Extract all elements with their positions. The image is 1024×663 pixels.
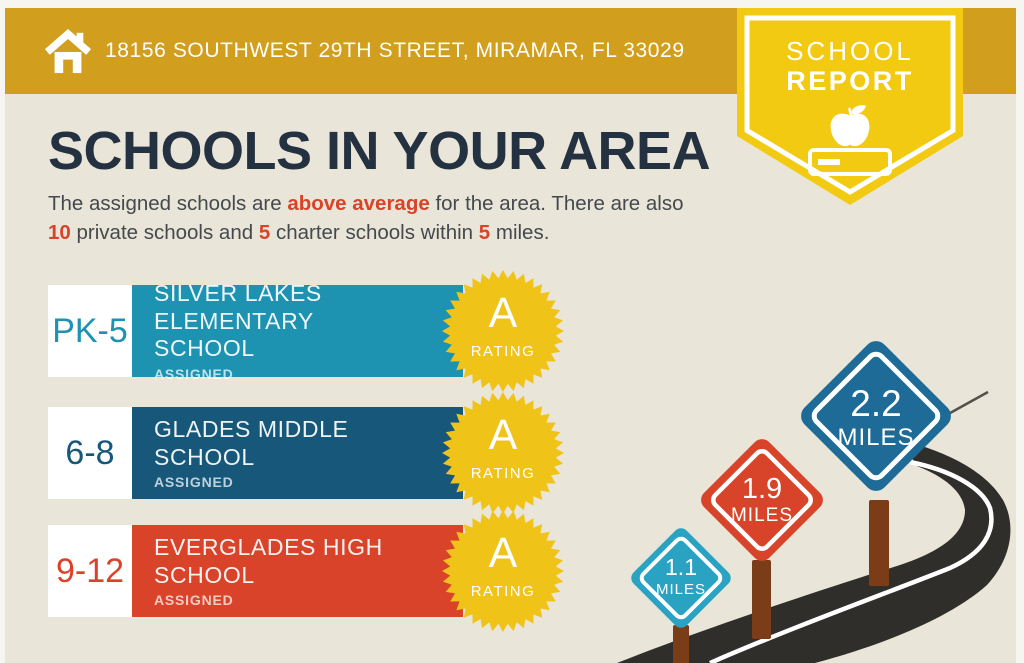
rating-grade: A [441,529,565,578]
distance-value: 1.9 [742,473,782,505]
school-report-ribbon: SCHOOL REPORT [737,8,963,213]
distance-value: 2.2 [850,383,901,424]
rating-badge: A RATING [441,269,565,393]
school-name: EVERGLADES HIGH SCHOOL [154,534,412,589]
road-shape [617,440,1010,663]
road-center-line [710,462,991,663]
distance-sign-1-9: 1.9 MILES [697,435,827,565]
grade-range: 6-8 [48,407,132,499]
school-row-elementary: PK-5 SILVER LAKES ELEMENTARY SCHOOL ASSI… [48,285,608,377]
apple-icon [820,104,880,150]
school-status: ASSIGNED [154,592,463,608]
school-status: ASSIGNED [154,474,463,490]
page-title: SCHOOLS IN YOUR AREA [48,120,710,182]
rating-label: RATING [441,465,565,482]
school-name-bar: SILVER LAKES ELEMENTARY SCHOOL ASSIGNED [132,285,463,377]
rating-badge: A RATING [441,391,565,515]
school-name-bar: EVERGLADES HIGH SCHOOL ASSIGNED [132,525,463,617]
grade-range: 9-12 [48,525,132,617]
rating-badge: A RATING [441,509,565,633]
ribbon-title-report: REPORT [737,66,963,97]
rating-grade: A [441,289,565,338]
school-status: ASSIGNED [154,366,463,382]
school-name: GLADES MIDDLE SCHOOL [154,416,412,471]
school-row-middle: 6-8 GLADES MIDDLE SCHOOL ASSIGNED A RATI… [48,407,608,499]
home-icon [45,28,91,74]
distance-value: 1.1 [665,554,697,580]
distance-sign-2-2: 2.2 MILES [796,336,956,496]
sign-post [869,500,889,586]
distance-sign-1-1: 1.1 MILES [628,525,734,631]
school-row-high: 9-12 EVERGLADES HIGH SCHOOL ASSIGNED A R… [48,525,608,617]
sign-post [673,625,689,663]
property-address: 18156 SOUTHWEST 29TH STREET, MIRAMAR, FL… [105,8,685,94]
school-name: SILVER LAKES ELEMENTARY SCHOOL [154,280,412,363]
distance-unit: MILES [731,505,793,526]
rating-grade: A [441,411,565,460]
grade-range: PK-5 [48,285,132,377]
school-name-bar: GLADES MIDDLE SCHOOL ASSIGNED [132,407,463,499]
rating-label: RATING [441,583,565,600]
infographic-content: 18156 SOUTHWEST 29TH STREET, MIRAMAR, FL… [5,8,1016,663]
school-report-infographic: 18156 SOUTHWEST 29TH STREET, MIRAMAR, FL… [0,0,1024,663]
road-horizon-line [905,392,988,438]
book-icon [808,148,892,176]
distance-unit: MILES [837,424,914,451]
rating-label: RATING [441,343,565,360]
ribbon-title-school: SCHOOL [737,36,963,67]
distance-unit: MILES [656,581,706,598]
intro-text: The assigned schools are above average f… [48,189,703,248]
sign-post [752,560,771,639]
